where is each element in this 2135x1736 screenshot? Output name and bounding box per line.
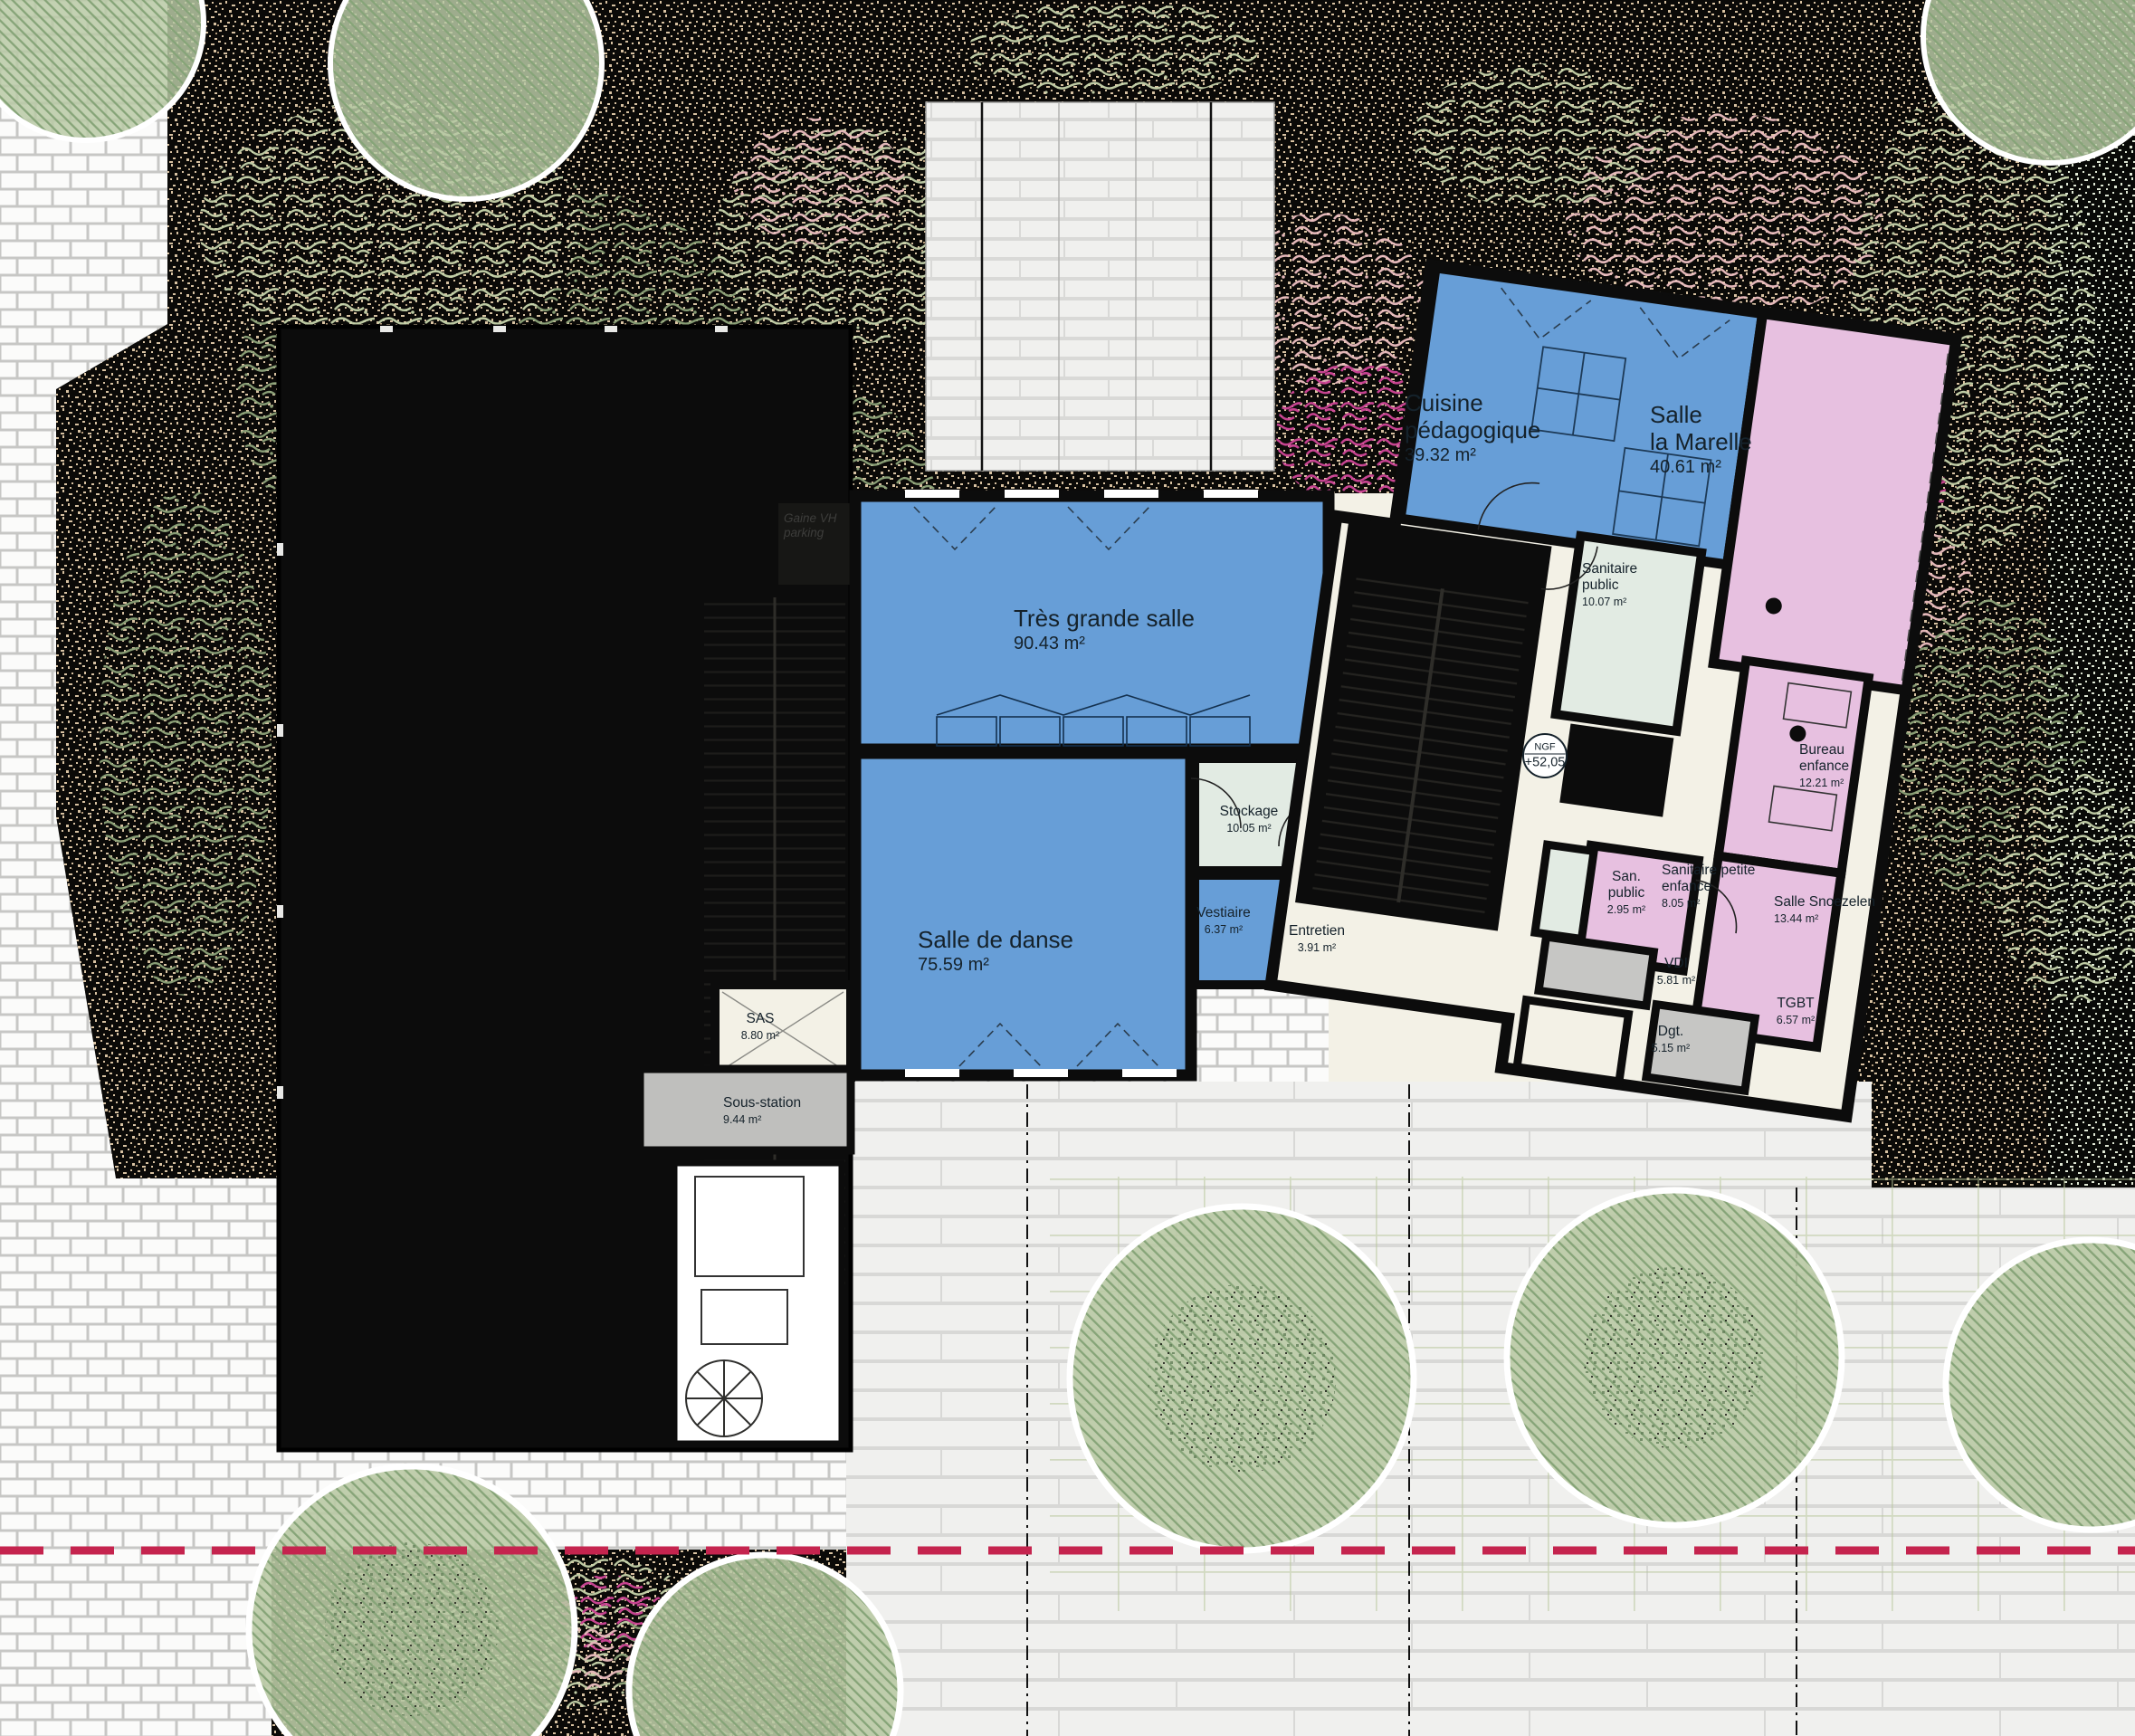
south-terrace <box>846 1082 2135 1736</box>
spiral-stair <box>686 1360 762 1436</box>
existing-building <box>277 326 851 1450</box>
tree-canopy <box>1507 1190 1842 1525</box>
ngf-level-marker <box>1523 734 1567 777</box>
site-plan-svg <box>0 0 2135 1736</box>
site-plan-stage: Cuisine pédagogique 39.32 m² Salle la Ma… <box>0 0 2135 1736</box>
tree-canopy <box>1070 1207 1414 1550</box>
north-deck <box>926 102 1274 471</box>
